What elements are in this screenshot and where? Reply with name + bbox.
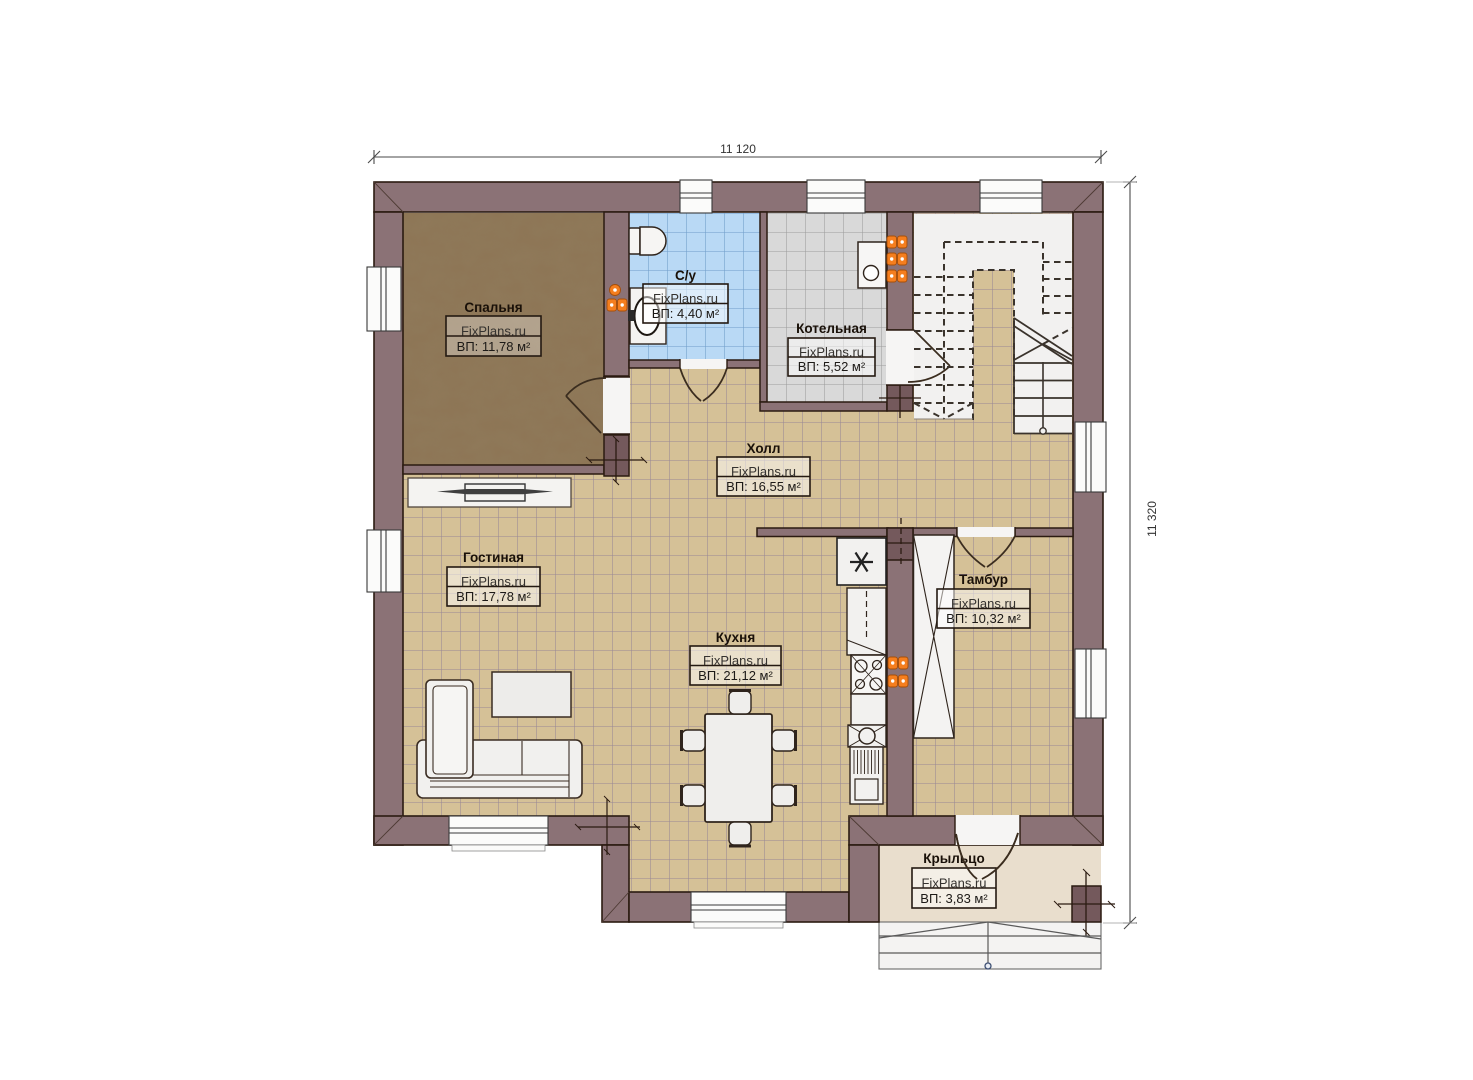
svg-text:Крыльцо: Крыльцо	[923, 851, 984, 866]
svg-text:ВП: 5,52 м²: ВП: 5,52 м²	[798, 359, 866, 374]
svg-text:FixPlans.ru: FixPlans.ru	[921, 875, 986, 890]
svg-text:ВП: 10,32 м²: ВП: 10,32 м²	[946, 611, 1021, 626]
svg-text:Гостиная: Гостиная	[463, 550, 524, 565]
svg-text:Кухня: Кухня	[716, 630, 755, 645]
svg-text:Котельная: Котельная	[796, 321, 867, 336]
svg-text:FixPlans.ru: FixPlans.ru	[461, 323, 526, 338]
svg-text:ВП: 21,12 м²: ВП: 21,12 м²	[698, 668, 773, 683]
svg-text:FixPlans.ru: FixPlans.ru	[703, 653, 768, 668]
svg-text:Холл: Холл	[747, 441, 781, 456]
svg-text:ВП: 16,55 м²: ВП: 16,55 м²	[726, 479, 801, 494]
svg-text:ВП: 3,83 м²: ВП: 3,83 м²	[920, 891, 988, 906]
svg-text:11 320: 11 320	[1145, 501, 1159, 537]
svg-text:ВП: 17,78 м²: ВП: 17,78 м²	[456, 589, 531, 604]
svg-text:FixPlans.ru: FixPlans.ru	[951, 596, 1016, 611]
svg-text:ВП: 4,40 м²: ВП: 4,40 м²	[652, 306, 720, 321]
svg-text:FixPlans.ru: FixPlans.ru	[799, 345, 864, 360]
svg-text:Спальня: Спальня	[464, 300, 522, 315]
svg-text:Тамбур: Тамбур	[959, 572, 1008, 587]
svg-text:FixPlans.ru: FixPlans.ru	[461, 574, 526, 589]
svg-text:11 120: 11 120	[720, 142, 756, 156]
svg-text:FixPlans.ru: FixPlans.ru	[653, 291, 718, 306]
svg-text:FixPlans.ru: FixPlans.ru	[731, 464, 796, 479]
svg-text:ВП: 11,78 м²: ВП: 11,78 м²	[457, 339, 531, 354]
svg-text:С/у: С/у	[675, 268, 697, 283]
